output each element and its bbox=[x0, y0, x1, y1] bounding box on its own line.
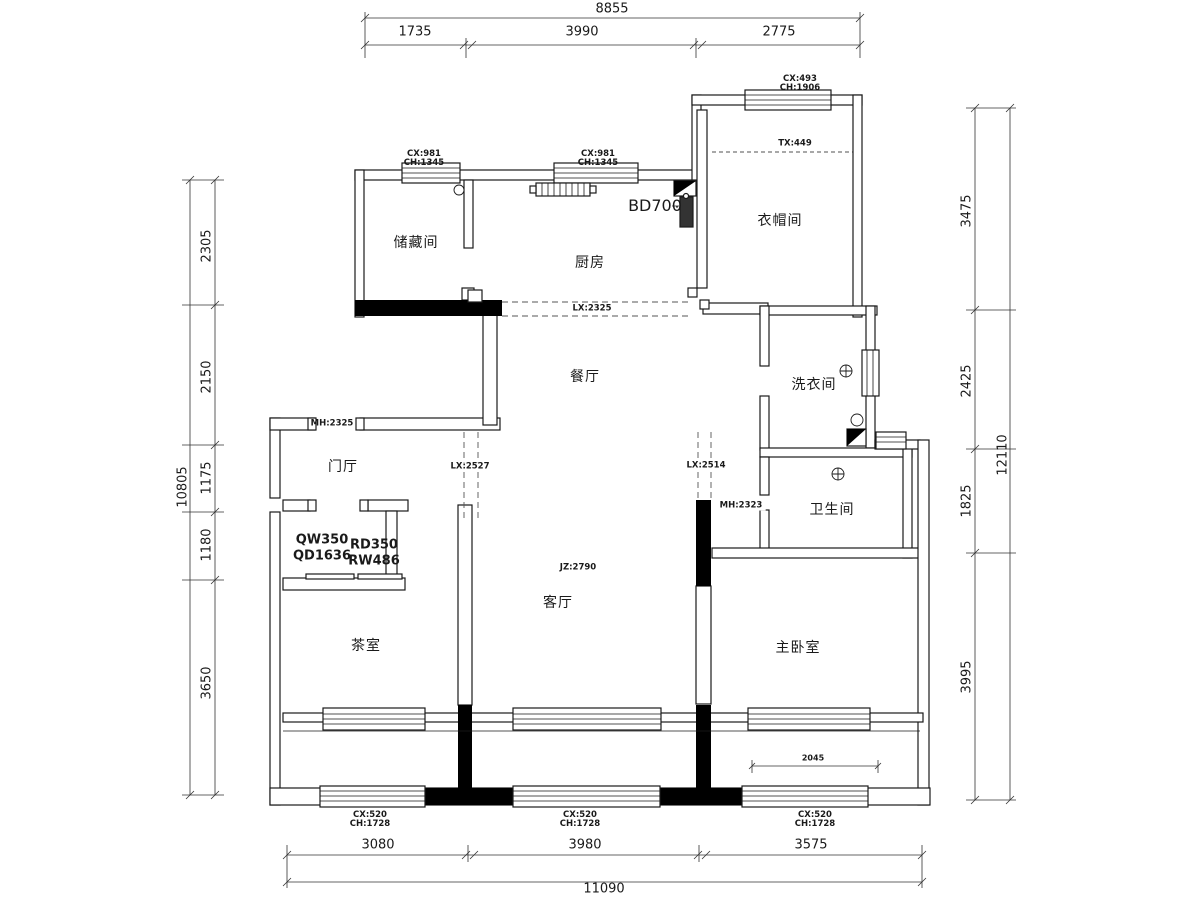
annotation-window-bottom-2: CX:520 CH:1728 bbox=[560, 811, 600, 829]
dim-right-seg-4: 3995 bbox=[961, 660, 976, 693]
room-label-cloakroom: 衣帽间 bbox=[758, 213, 803, 229]
dim-bottom-total: 11090 bbox=[583, 883, 624, 898]
dim-top-seg-1: 1735 bbox=[398, 26, 431, 41]
annotation-qw-codes: QW350 QD1636 bbox=[293, 532, 351, 563]
annotation-mh-entry: MH:2325 bbox=[311, 420, 354, 429]
dim-right-seg-1: 3475 bbox=[961, 194, 976, 227]
annotation-lx-right: LX:2514 bbox=[683, 462, 728, 471]
room-label-foyer: 门厅 bbox=[328, 459, 358, 475]
annotation-bd-heater: BD700 bbox=[628, 197, 682, 215]
annotation-window-bottom-1: CX:520 CH:1728 bbox=[350, 811, 390, 829]
room-label-laundry: 洗衣间 bbox=[792, 377, 837, 393]
dim-top-seg-2: 3990 bbox=[565, 26, 598, 41]
dim-left-seg-2: 2150 bbox=[201, 360, 216, 393]
dim-balcony-width: 2045 bbox=[802, 753, 824, 762]
annotation-mh-bath: MH:2323 bbox=[717, 502, 766, 511]
annotation-window-cloakroom: CX:493 CH:1906 bbox=[780, 75, 820, 93]
dim-top-seg-3: 2775 bbox=[762, 26, 795, 41]
dim-bottom-seg-1: 3080 bbox=[361, 839, 394, 854]
annotation-tx-cloakroom: TX:449 bbox=[778, 140, 812, 149]
dim-right-seg-3: 1825 bbox=[961, 484, 976, 517]
annotation-window-storage: CX:981 CH:1345 bbox=[404, 150, 444, 168]
annotation-lx-kitchen: LX:2325 bbox=[569, 305, 614, 314]
dim-right-seg-2: 2425 bbox=[961, 364, 976, 397]
dim-bottom-seg-2: 3980 bbox=[568, 839, 601, 854]
room-label-kitchen: 厨房 bbox=[575, 255, 605, 271]
annotation-lx-left: LX:2527 bbox=[447, 463, 492, 472]
dim-bottom-seg-3: 3575 bbox=[794, 839, 827, 854]
dim-left-total: 10805 bbox=[177, 466, 192, 507]
annotation-rd-codes: RD350 RW486 bbox=[348, 537, 400, 568]
dim-left-seg-1: 2305 bbox=[201, 229, 216, 262]
room-label-storage: 储藏间 bbox=[394, 235, 439, 251]
dim-top-total: 8855 bbox=[595, 3, 628, 18]
annotation-jz-living: JZ:2790 bbox=[560, 564, 596, 573]
annotation-window-bottom-3: CX:520 CH:1728 bbox=[795, 811, 835, 829]
room-label-tea: 茶室 bbox=[351, 638, 381, 654]
dim-right-total: 12110 bbox=[997, 434, 1012, 475]
room-label-dining: 餐厅 bbox=[570, 369, 600, 385]
floorplan-drawing bbox=[0, 0, 1200, 900]
dim-left-seg-3: 1175 bbox=[201, 461, 216, 494]
annotation-window-kitchen: CX:981 CH:1345 bbox=[578, 150, 618, 168]
dim-left-seg-4: 1180 bbox=[201, 528, 216, 561]
room-label-living: 客厅 bbox=[543, 595, 573, 611]
dim-left-seg-5: 3650 bbox=[201, 666, 216, 699]
floorplan-canvas: 储藏间 厨房 衣帽间 洗衣间 卫生间 门厅 餐厅 客厅 茶室 主卧室 CX:98… bbox=[0, 0, 1200, 900]
room-label-bathroom: 卫生间 bbox=[810, 502, 855, 518]
room-label-master: 主卧室 bbox=[776, 640, 821, 656]
